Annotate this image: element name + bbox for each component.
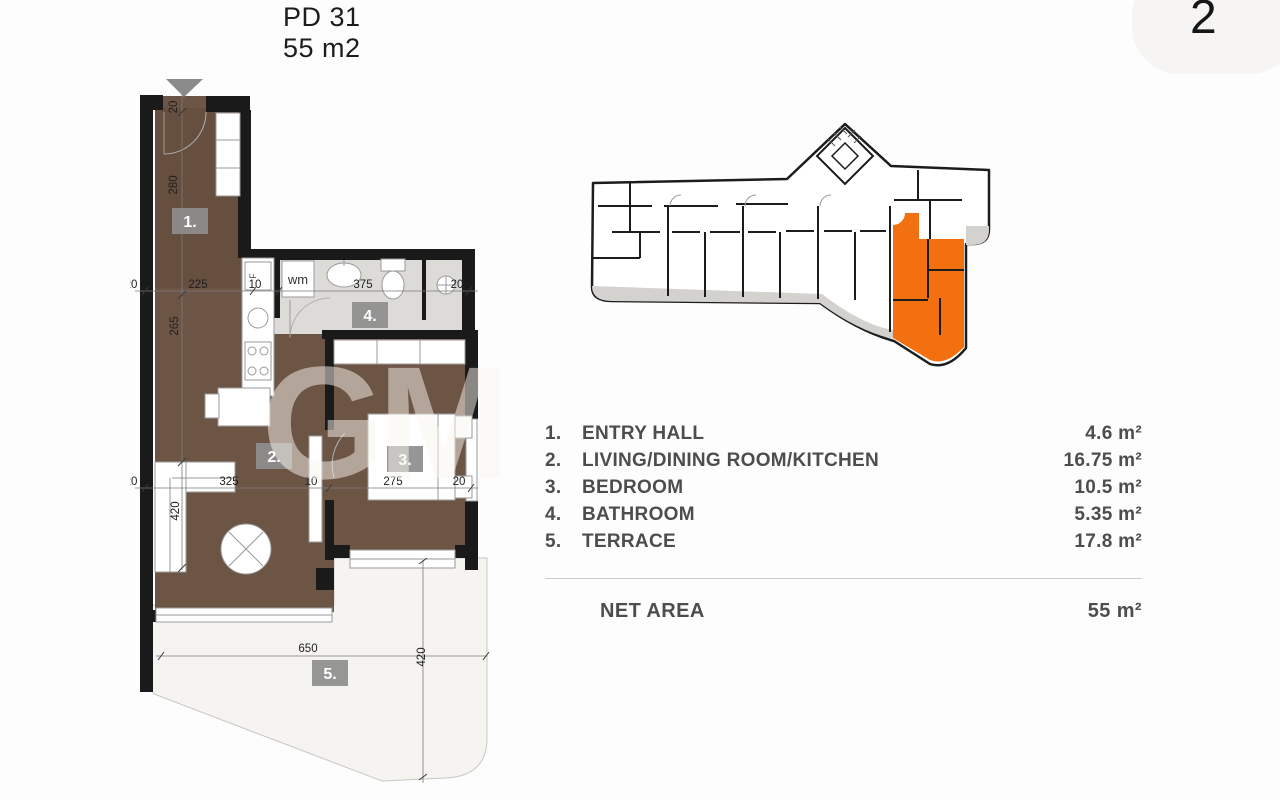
wall-bedroom-bottom-l	[325, 545, 350, 558]
unit-code: PD 31	[283, 2, 361, 33]
dim-top-225: 225	[188, 279, 207, 291]
legend-num: 4.	[545, 501, 582, 528]
legend-room-name: LIVING/DINING ROOM/KITCHEN	[582, 447, 1022, 474]
room-chip-terrace-label: 5.	[323, 666, 336, 683]
legend-room-name: TERRACE	[582, 528, 1022, 555]
legend-row-bedroom: 3. BEDROOM 10.5 m²	[545, 474, 1142, 501]
legend-num: 1.	[545, 420, 582, 447]
dim-terrace-650: 650	[298, 643, 317, 655]
toilet-tank	[381, 259, 405, 271]
legend-divider	[545, 578, 1142, 579]
legend-num: 5.	[545, 528, 582, 555]
dim-terrace-420: 420	[416, 647, 428, 666]
legend-row-entry-hall: 1. ENTRY HALL 4.6 m²	[545, 420, 1142, 447]
legend-room-area: 16.75 m²	[1022, 447, 1142, 474]
dim-left-20: 20	[168, 101, 180, 114]
watermark-gm: GM	[261, 333, 502, 512]
wall-left	[140, 95, 153, 692]
kitchen-sink	[248, 308, 268, 328]
legend-row-living: 2. LIVING/DINING ROOM/KITCHEN 16.75 m²	[545, 447, 1142, 474]
dim-top-20l: 20	[130, 279, 137, 291]
dim-left-265: 265	[169, 316, 181, 335]
net-area-label: NET AREA	[600, 600, 1022, 623]
legend-row-bathroom: 4. BATHROOM 5.35 m²	[545, 501, 1142, 528]
washing-machine-label: wm	[287, 272, 308, 287]
legend-room-area: 10.5 m²	[1022, 474, 1142, 501]
wall-top-left	[140, 95, 163, 110]
wall-bedroom-bottom-r	[455, 545, 478, 558]
page-number: 2	[1190, 0, 1217, 45]
net-area-value: 55 m²	[1022, 600, 1142, 623]
dim-mid-20l: 20	[130, 476, 137, 488]
keyplan-terrace-corner-right	[966, 226, 989, 245]
plan-title: PD 31 55 m2	[283, 2, 361, 64]
legend-room-name: BEDROOM	[582, 474, 1022, 501]
room-legend: 1. ENTRY HALL 4.6 m² 2. LIVING/DINING RO…	[545, 420, 1142, 555]
wall-shower-divider	[422, 260, 426, 320]
legend-room-area: 4.6 m²	[1022, 420, 1142, 447]
legend-room-area: 5.35 m²	[1022, 501, 1142, 528]
unit-floor-plan: 20 225 10 375 20 20 325 10 275 20 20 280…	[130, 70, 502, 800]
entry-closet	[216, 113, 240, 196]
dim-top-375: 375	[353, 279, 372, 291]
legend-room-area: 17.8 m²	[1022, 528, 1142, 555]
wall-top-right	[206, 96, 250, 112]
legend-num: 2.	[545, 447, 582, 474]
legend-num: 3.	[545, 474, 582, 501]
entrance-arrow-icon	[166, 79, 203, 97]
dim-left-420: 420	[170, 501, 182, 520]
unit-inner-walls	[612, 231, 886, 232]
dim-top-20r: 20	[451, 279, 464, 291]
legend-room-name: ENTRY HALL	[582, 420, 1022, 447]
fridge-label: F	[248, 273, 258, 279]
room-chip-entry-label: 1.	[183, 214, 196, 231]
legend-row-terrace: 5. TERRACE 17.8 m²	[545, 528, 1142, 555]
floor-plan-sheet: PD 31 55 m2 2	[0, 0, 1280, 800]
wall-bath-right	[462, 249, 475, 339]
room-chip-bathroom-label: 4.	[363, 308, 376, 325]
unit-size: 55 m2	[283, 33, 361, 64]
dim-left-280: 280	[168, 175, 180, 194]
dim-top-10: 10	[249, 279, 262, 291]
building-key-plan	[580, 110, 1010, 375]
legend-room-name: BATHROOM	[582, 501, 1022, 528]
wall-bath-top	[251, 249, 475, 260]
dim-mid-325: 325	[219, 476, 238, 488]
dining-chair	[205, 394, 219, 418]
wall-living-bottom-stub	[316, 568, 334, 590]
net-area-row: NET AREA 55 m²	[545, 600, 1142, 623]
toilet-bowl	[382, 271, 404, 299]
